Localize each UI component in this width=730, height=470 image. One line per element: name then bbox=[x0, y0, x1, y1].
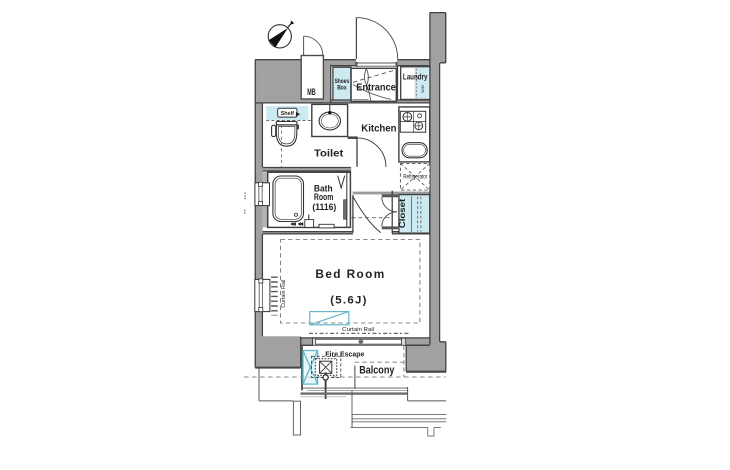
svg-text:(5.6J): (5.6J) bbox=[330, 294, 366, 306]
svg-text:Fire Escape: Fire Escape bbox=[325, 350, 364, 359]
svg-text:MB: MB bbox=[307, 87, 316, 97]
svg-text:Laundry: Laundry bbox=[403, 73, 428, 82]
svg-text:Closet: Closet bbox=[398, 198, 407, 228]
svg-text:Box: Box bbox=[337, 85, 347, 92]
svg-text:Toilet: Toilet bbox=[314, 148, 344, 159]
svg-text:Balcony: Balcony bbox=[359, 364, 395, 376]
svg-text:Entrance: Entrance bbox=[356, 83, 396, 94]
svg-text:Refrigerator: Refrigerator bbox=[403, 174, 427, 180]
svg-text:W/M: W/M bbox=[421, 85, 425, 92]
svg-text:Shelf: Shelf bbox=[281, 111, 294, 117]
svg-text:Curtain Rail: Curtain Rail bbox=[342, 327, 374, 333]
svg-text:(1116): (1116) bbox=[312, 202, 336, 212]
svg-text:Curtain Rail: Curtain Rail bbox=[281, 280, 287, 308]
svg-text:Bed Room: Bed Room bbox=[315, 267, 384, 281]
svg-text:Kitchen: Kitchen bbox=[361, 123, 396, 134]
svg-text:Room: Room bbox=[314, 192, 333, 202]
